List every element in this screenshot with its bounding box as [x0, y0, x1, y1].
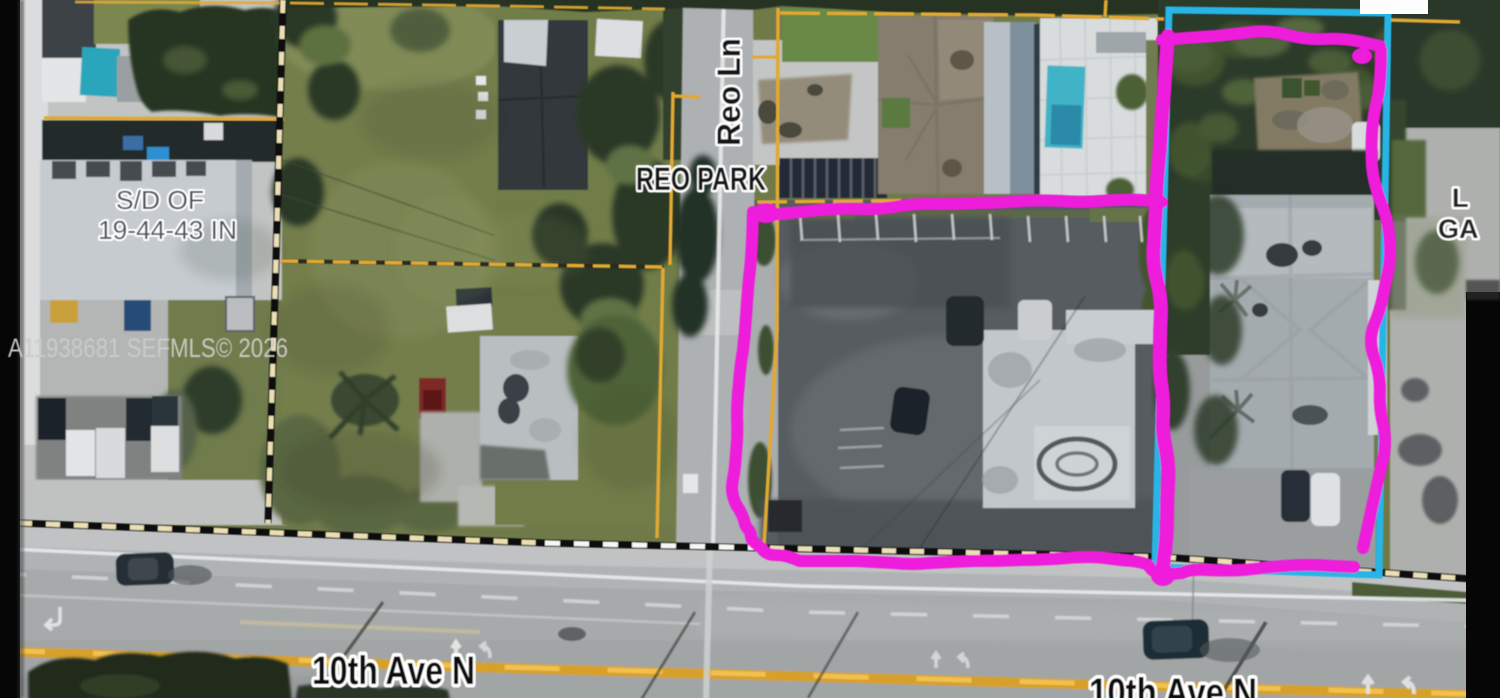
svg-text:A11938681 SEFMLS© 2026: A11938681 SEFMLS© 2026 — [8, 333, 288, 363]
svg-text:REO PARK: REO PARK — [636, 161, 766, 197]
svg-text:10th Ave N: 10th Ave N — [1089, 671, 1257, 698]
svg-text:GA: GA — [1438, 214, 1479, 244]
svg-text:S/D OF: S/D OF — [116, 185, 204, 215]
svg-text:19-44-43 IN: 19-44-43 IN — [98, 215, 237, 245]
svg-text:Reo Ln: Reo Ln — [711, 38, 747, 146]
svg-text:10th Ave N: 10th Ave N — [312, 649, 475, 693]
svg-text:L: L — [1452, 183, 1469, 213]
